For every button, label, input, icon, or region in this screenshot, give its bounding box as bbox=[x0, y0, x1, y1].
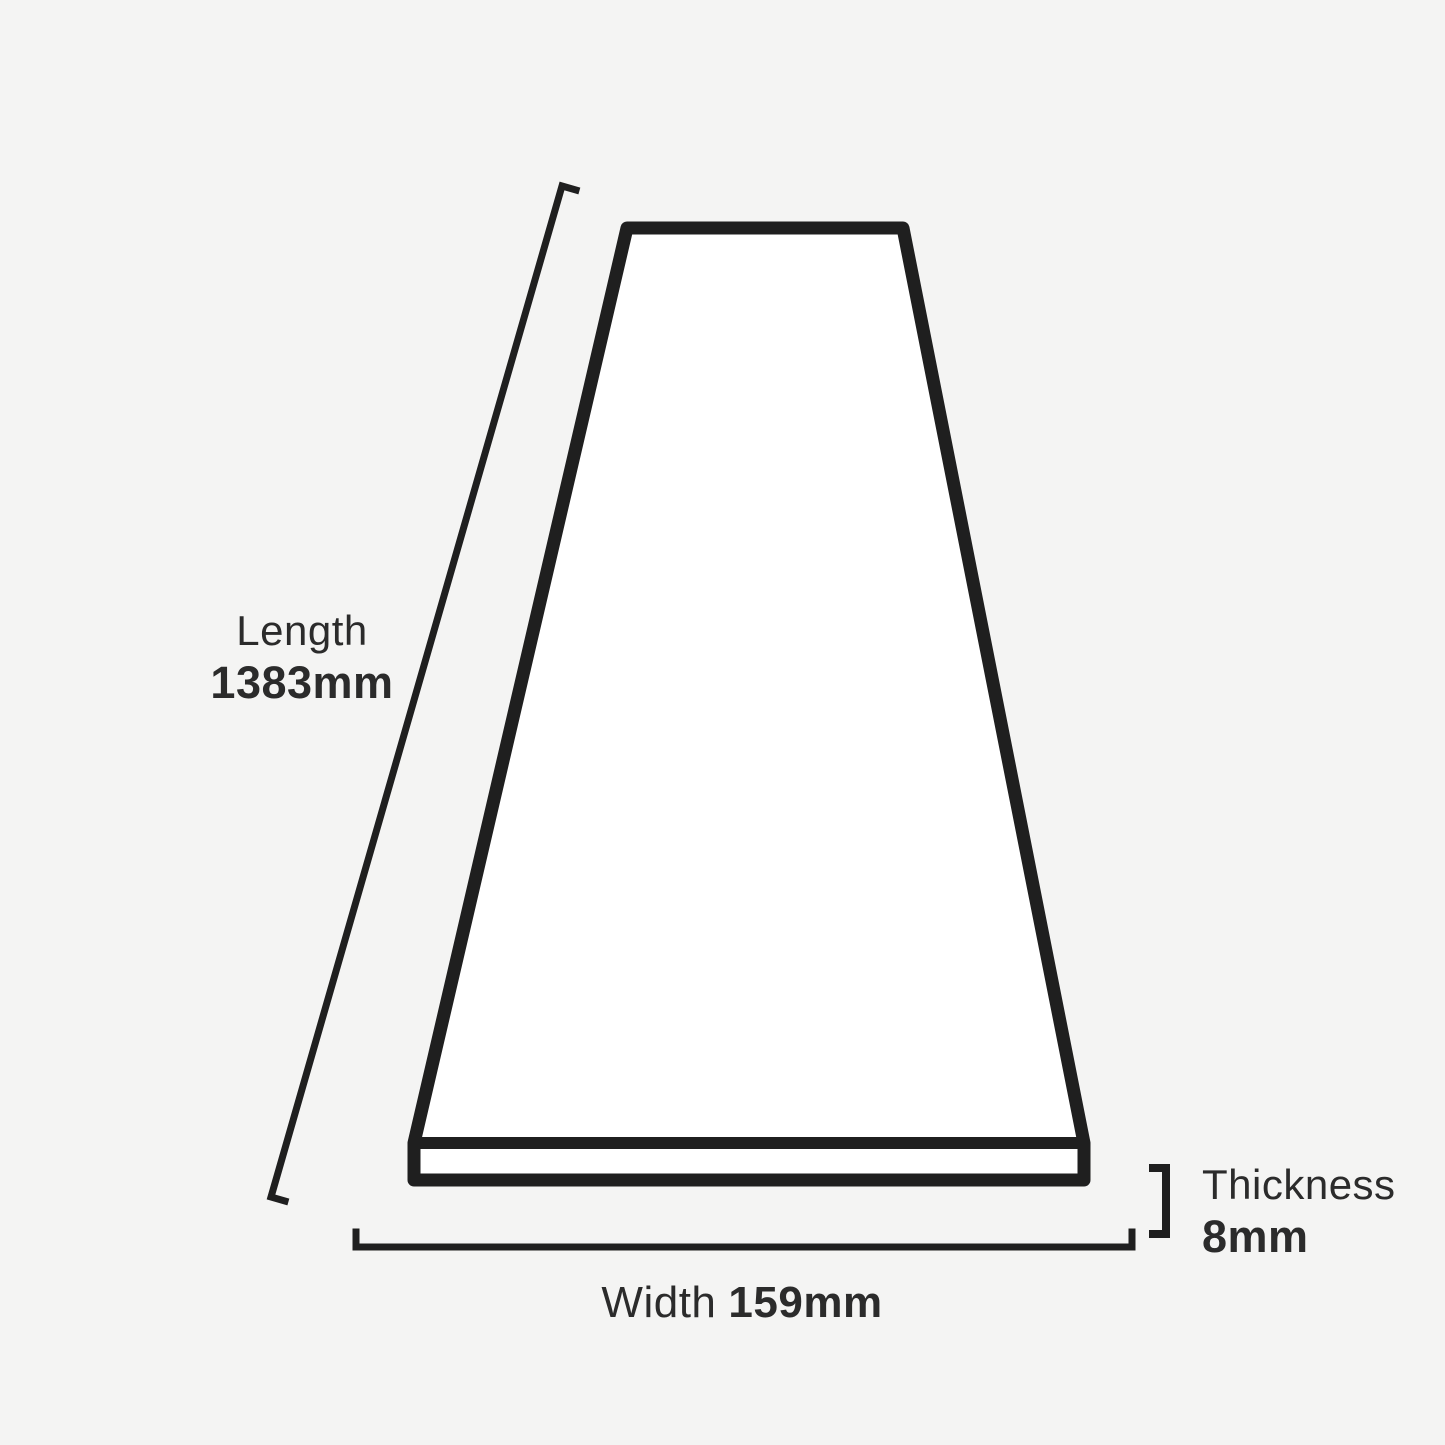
thickness-label-title: Thickness bbox=[1202, 1160, 1396, 1210]
length-label-title: Length bbox=[210, 606, 393, 656]
width-label: Width159mm bbox=[601, 1277, 882, 1329]
width-dimension-line bbox=[356, 1232, 1132, 1247]
width-label-title: Width bbox=[601, 1278, 716, 1327]
thickness-bracket bbox=[1153, 1168, 1166, 1234]
plank-dimension-diagram: Length 1383mm Thickness 8mm Width159mm bbox=[0, 0, 1445, 1445]
length-label-value: 1383mm bbox=[210, 656, 393, 709]
thickness-label-value: 8mm bbox=[1202, 1210, 1396, 1263]
thickness-label: Thickness 8mm bbox=[1202, 1160, 1396, 1263]
length-label: Length 1383mm bbox=[210, 606, 393, 709]
plank-outline bbox=[414, 228, 1084, 1180]
width-label-value: 159mm bbox=[728, 1278, 882, 1327]
